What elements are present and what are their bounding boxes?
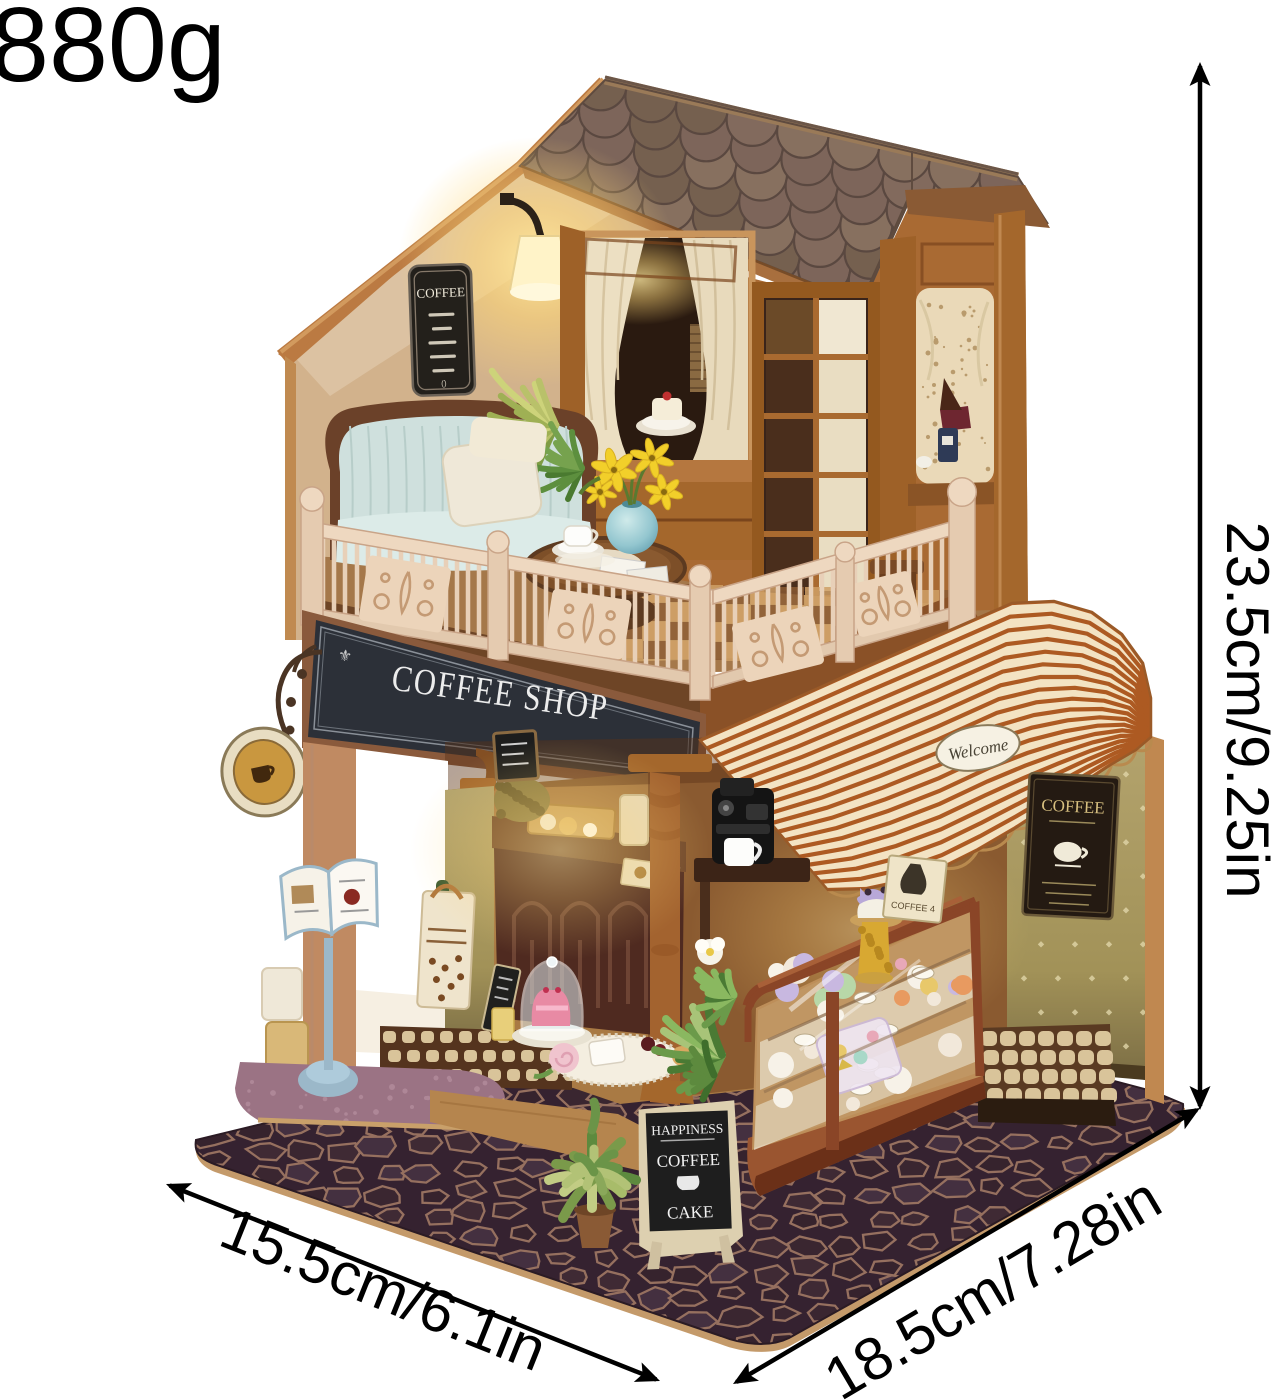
svg-text:(): (): [441, 379, 447, 388]
svg-text:23.5cm/9.25in: 23.5cm/9.25in: [1214, 522, 1281, 899]
svg-text:⚜: ⚜: [337, 647, 354, 666]
svg-text:CAKE: CAKE: [667, 1202, 714, 1223]
svg-text:COFFEE: COFFEE: [656, 1150, 720, 1171]
svg-text:HAPPINESS: HAPPINESS: [651, 1121, 724, 1139]
svg-text:COFFEE: COFFEE: [416, 284, 465, 301]
svg-text:COFFEE: COFFEE: [1041, 795, 1105, 817]
svg-text:880g: 880g: [0, 0, 226, 104]
